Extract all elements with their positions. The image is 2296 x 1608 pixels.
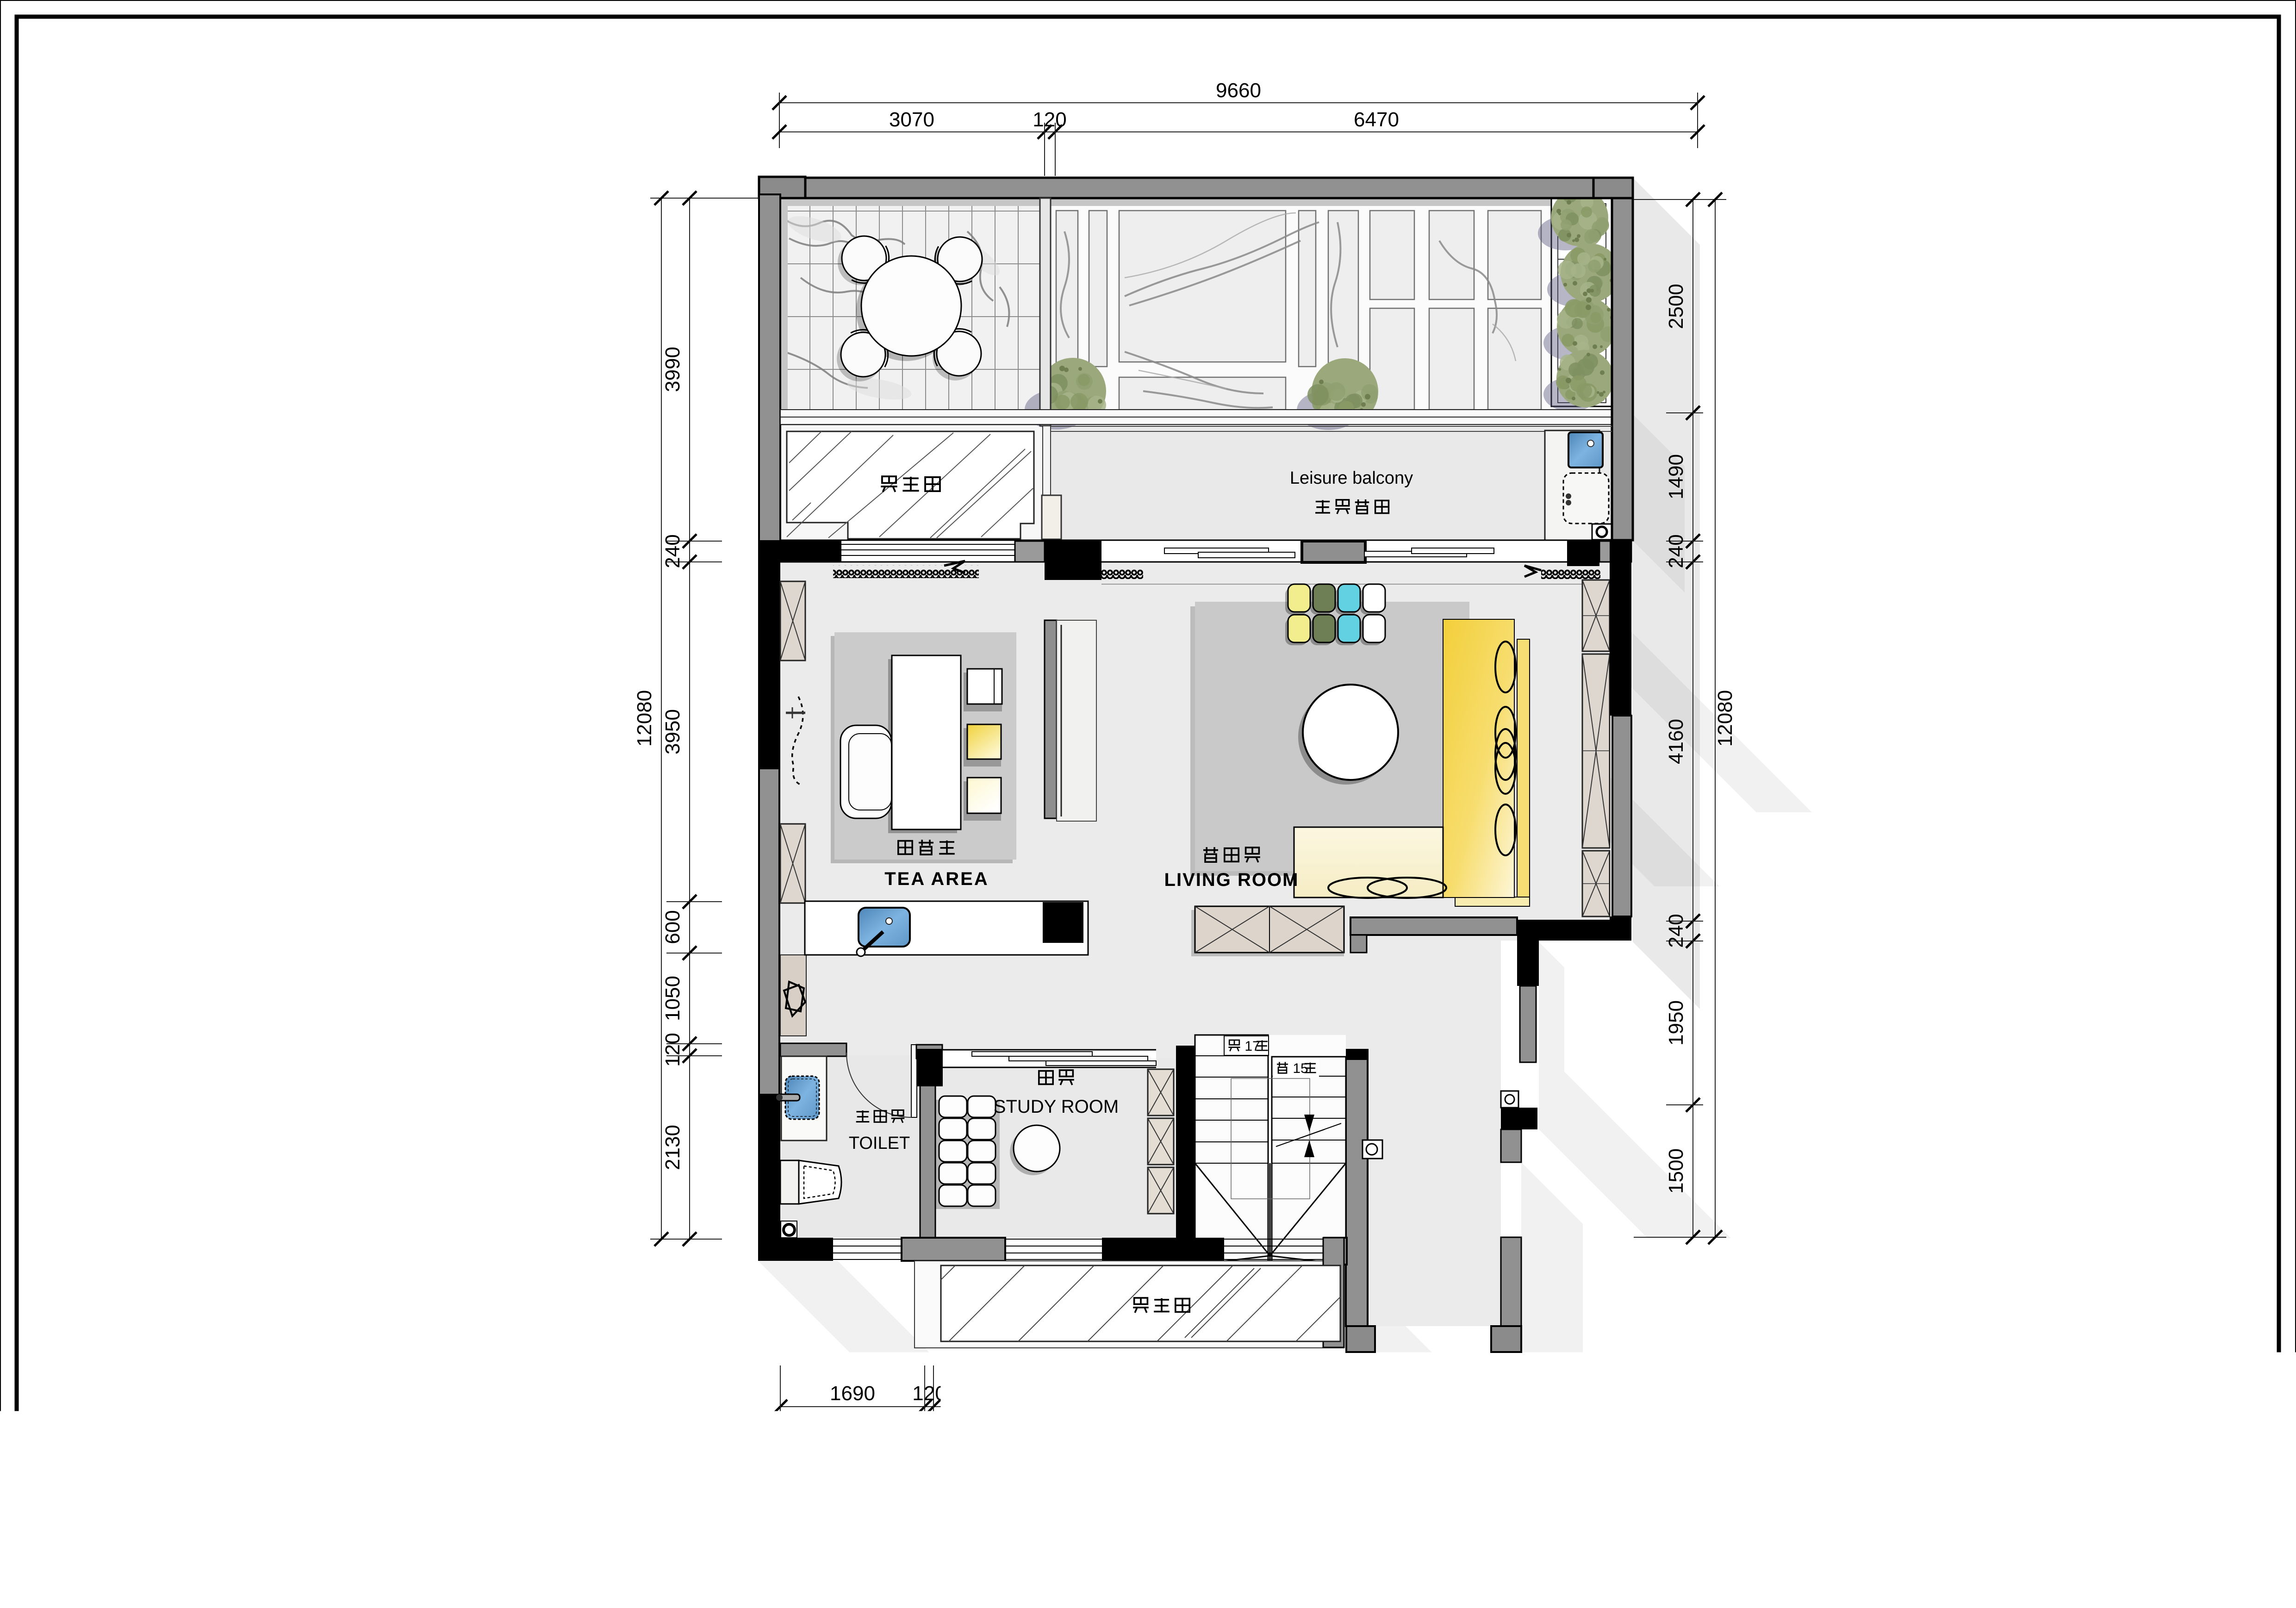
svg-text:120: 120: [912, 1382, 946, 1405]
svg-text:DISCIPLINE: DISCIPLINE: [1839, 1557, 1901, 1569]
svg-text:Scale.: Scale.: [2149, 1520, 2185, 1534]
svg-text:TOILET: TOILET: [849, 1134, 910, 1153]
svg-text:240: 240: [661, 534, 684, 568]
svg-text:(1): (1): [627, 1530, 638, 1540]
svg-text:12080: 12080: [1714, 690, 1736, 747]
svg-text:A3-420*293: A3-420*293: [2215, 1593, 2288, 1608]
svg-text:DATE: DATE: [1524, 1521, 1557, 1535]
svg-text:3070: 3070: [889, 108, 934, 131]
svg-text:548: 548: [991, 1505, 1014, 1520]
svg-text:Quoted: Quoted: [1315, 1521, 1354, 1535]
svg-text:230: 230: [1166, 1382, 1200, 1405]
svg-text:DRAWING NO.: DRAWING NO.: [2129, 1557, 2205, 1569]
svg-text:2780: 2780: [1032, 1382, 1077, 1405]
svg-text:Leisure balcony: Leisure balcony: [1290, 468, 1413, 488]
svg-text:: 0573 - 8701 5618: : 0573 - 8701 5618: [913, 1528, 1037, 1545]
svg-text:LIVING ROOM: LIVING ROOM: [1164, 870, 1299, 890]
svg-text:240: 240: [1665, 914, 1687, 947]
svg-text:600: 600: [661, 910, 684, 944]
svg-text:9660: 9660: [1216, 79, 1261, 102]
svg-text:1490: 1490: [1665, 454, 1687, 499]
svg-text:TEA AREA: TEA AREA: [884, 869, 989, 889]
svg-text:2020: 2020: [1522, 1546, 1559, 1564]
svg-text:Client approved: Client approved: [1140, 1522, 1218, 1535]
svg-text:30-105: 30-105: [1965, 1507, 2022, 1527]
svg-text:SM-05: SM-05: [2215, 1550, 2278, 1574]
svg-text:1690: 1690: [830, 1382, 875, 1405]
svg-text:8570: 8570: [1126, 1409, 1171, 1431]
svg-text:DESIGN: DESIGN: [1378, 1521, 1428, 1535]
svg-text:1500: 1500: [1665, 1148, 1687, 1194]
svg-text:(2): (2): [627, 1555, 638, 1565]
svg-text:12080: 12080: [633, 690, 656, 747]
svg-text:STUDY ROOM: STUDY ROOM: [994, 1097, 1119, 1117]
svg-text::: :: [637, 1504, 640, 1516]
svg-text:120: 120: [661, 1033, 684, 1066]
svg-text:DRAWING: DRAWING: [1572, 1531, 1621, 1542]
svg-text:PROJECTS: PROJECTS: [1841, 1519, 1900, 1532]
svg-text:3990: 3990: [661, 347, 684, 392]
svg-text:VERIFY: VERIFY: [1244, 1521, 1290, 1535]
svg-text:: 0573- 8701 5619: : 0573- 8701 5619: [913, 1553, 1033, 1570]
svg-text:1550: 1550: [1409, 1382, 1455, 1405]
svg-text:2130: 2130: [661, 1125, 684, 1170]
svg-text:DRAWING: DRAWING: [1441, 1521, 1503, 1535]
svg-text:1050: 1050: [661, 976, 684, 1021]
svg-text:-: -: [2235, 1537, 2240, 1551]
svg-text:4160: 4160: [1665, 719, 1687, 764]
svg-text:1760: 1760: [1247, 1382, 1292, 1405]
svg-text:6470: 6470: [1354, 108, 1399, 131]
svg-text:120: 120: [1033, 108, 1066, 131]
svg-text:240: 240: [1665, 534, 1687, 568]
svg-text:Huaxun taste Decoration Co., L: Huaxun taste Decoration Co., Ltd: [256, 1544, 557, 1566]
svg-text:2500: 2500: [1665, 284, 1687, 329]
svg-text:240: 240: [1338, 1382, 1372, 1405]
svg-text:200: 200: [1491, 1382, 1525, 1405]
svg-text:TITLE: TITLE: [1583, 1546, 1611, 1558]
svg-text:3950: 3950: [661, 709, 684, 754]
svg-text:1950: 1950: [1665, 1000, 1687, 1046]
